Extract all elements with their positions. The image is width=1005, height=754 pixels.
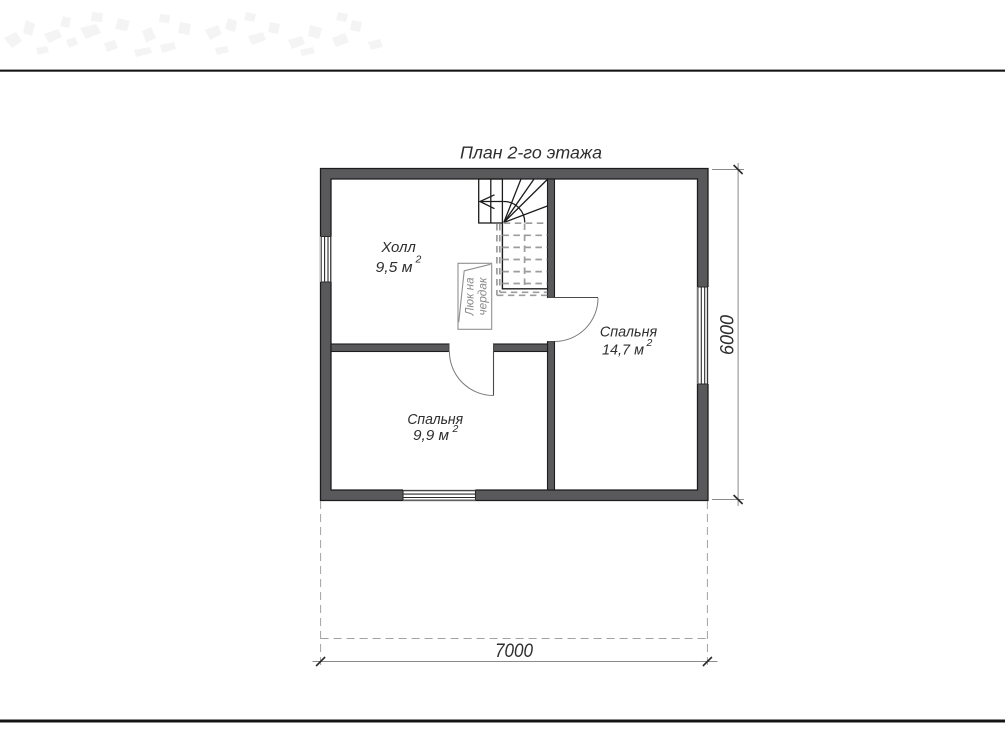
svg-text:6000: 6000 bbox=[717, 315, 739, 355]
svg-text:9,9 м: 9,9 м bbox=[413, 427, 450, 444]
svg-text:9,5 м: 9,5 м bbox=[376, 259, 414, 276]
svg-text:Холл: Холл bbox=[380, 239, 416, 256]
svg-text:чердак: чердак bbox=[478, 277, 490, 316]
svg-text:План 2-го этажа: План 2-го этажа bbox=[460, 142, 602, 162]
svg-text:Люк на: Люк на bbox=[465, 278, 477, 317]
svg-text:2: 2 bbox=[646, 337, 653, 349]
svg-text:2: 2 bbox=[415, 254, 422, 266]
svg-text:7000: 7000 bbox=[495, 640, 533, 662]
svg-text:2: 2 bbox=[452, 423, 459, 435]
svg-text:14,7 м: 14,7 м bbox=[602, 342, 645, 359]
